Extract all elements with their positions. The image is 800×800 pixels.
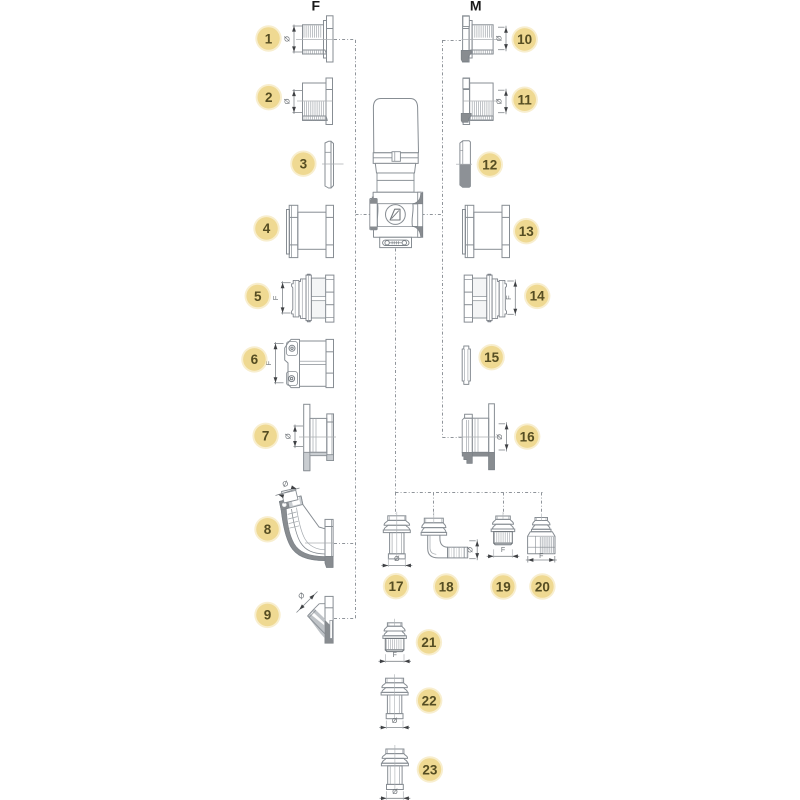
- svg-text:1: 1: [265, 31, 273, 46]
- svg-text:F: F: [312, 0, 321, 14]
- svg-text:9: 9: [264, 608, 272, 623]
- svg-text:15: 15: [484, 350, 500, 365]
- svg-text:Ø: Ø: [283, 98, 292, 104]
- svg-text:2: 2: [265, 90, 273, 105]
- svg-text:Ø: Ø: [283, 36, 292, 42]
- svg-text:Ø: Ø: [466, 547, 475, 553]
- svg-text:20: 20: [535, 579, 550, 594]
- svg-text:M: M: [470, 0, 482, 14]
- svg-text:Ø: Ø: [392, 718, 398, 725]
- svg-text:F: F: [504, 295, 513, 300]
- svg-text:22: 22: [422, 693, 437, 708]
- svg-text:Ø: Ø: [394, 556, 400, 563]
- svg-text:F: F: [393, 652, 397, 659]
- svg-text:6: 6: [251, 352, 259, 367]
- svg-text:Ø: Ø: [495, 434, 504, 440]
- svg-text:14: 14: [530, 289, 546, 304]
- svg-text:16: 16: [520, 429, 536, 444]
- svg-text:19: 19: [496, 579, 511, 594]
- svg-text:8: 8: [264, 522, 272, 537]
- svg-text:23: 23: [422, 762, 438, 777]
- svg-text:F: F: [539, 553, 543, 560]
- svg-text:F: F: [501, 547, 505, 554]
- svg-text:21: 21: [421, 635, 437, 650]
- svg-text:Ø: Ø: [495, 35, 504, 41]
- svg-text:Ø: Ø: [392, 789, 398, 796]
- svg-text:Ø: Ø: [495, 98, 504, 104]
- svg-text:3: 3: [300, 157, 308, 172]
- svg-text:F: F: [271, 295, 280, 300]
- svg-text:13: 13: [519, 224, 535, 239]
- svg-text:Ø: Ø: [284, 433, 293, 439]
- svg-text:5: 5: [254, 289, 262, 304]
- svg-text:18: 18: [439, 579, 455, 594]
- svg-text:7: 7: [262, 429, 270, 444]
- svg-text:12: 12: [482, 157, 497, 172]
- svg-text:17: 17: [388, 579, 403, 594]
- svg-text:4: 4: [263, 221, 271, 236]
- svg-text:10: 10: [517, 32, 532, 47]
- svg-text:11: 11: [518, 93, 533, 108]
